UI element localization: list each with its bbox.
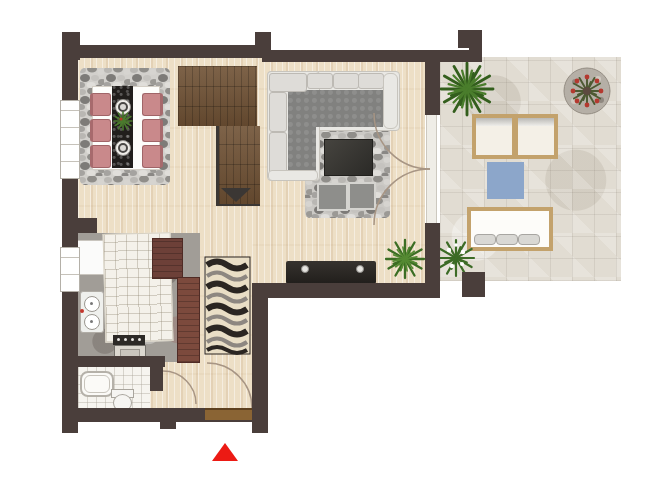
round-flower-planter [564,68,610,114]
bathroom-door-arc [163,371,196,404]
wall-living-bottom [252,283,440,298]
entrance-door [205,408,252,420]
floor-plan [0,0,650,480]
dining-centerpiece-plant [114,112,132,130]
terrace-corner-pillar [462,272,485,297]
wall-top-west [70,45,262,58]
wall-hallway-right [252,298,268,422]
wall-kitchen-stub [62,218,97,233]
palm-plant [441,63,493,115]
french-door-arc [374,113,430,169]
flowering-plant [438,240,474,276]
wall-bathroom-top [62,356,165,367]
wall-left-middle [62,177,78,247]
window-kitchen [60,247,80,292]
french-door-arc [374,169,430,225]
wall-bottom-tab [160,420,176,429]
window-dining [60,100,80,179]
wall-bottom-corner-tab [252,408,268,433]
door-swing-arcs [163,113,430,408]
pillar-terrace-step-b [469,46,482,62]
entrance-door-arc [207,363,252,408]
wall-right-upper [425,50,440,115]
wall-bathroom-right [150,367,163,391]
living-room-plant [386,240,424,278]
